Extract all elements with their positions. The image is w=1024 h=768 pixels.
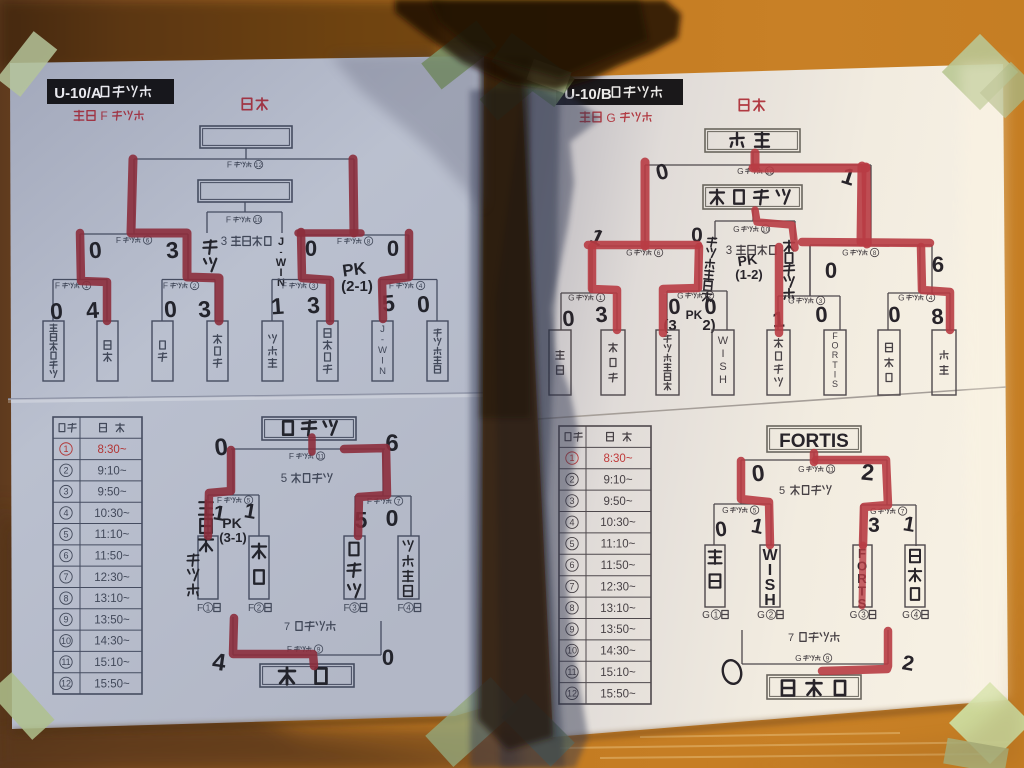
svg-text:(1-2): (1-2): [735, 267, 762, 282]
svg-text:PK: PK: [222, 515, 241, 531]
svg-text:2: 2: [769, 610, 774, 619]
svg-text:6: 6: [657, 250, 661, 257]
svg-text:G: G: [795, 653, 802, 663]
svg-text:F: F: [100, 109, 107, 123]
svg-text:F: F: [116, 235, 121, 245]
svg-text:3: 3: [197, 296, 212, 323]
svg-text:0: 0: [561, 306, 575, 332]
svg-text:F: F: [289, 451, 294, 461]
svg-text:I: I: [834, 369, 837, 379]
svg-text:13:50~: 13:50~: [94, 614, 130, 626]
svg-text:15:50~: 15:50~: [600, 688, 636, 700]
svg-text:G: G: [902, 610, 910, 621]
svg-text:U-10/A: U-10/A: [54, 85, 102, 102]
svg-text:11:10~: 11:10~: [95, 529, 130, 541]
svg-text:7: 7: [284, 621, 290, 633]
svg-text:8:30~: 8:30~: [603, 453, 632, 465]
svg-text:G: G: [757, 610, 765, 621]
svg-text:S: S: [832, 379, 838, 389]
svg-text:8: 8: [63, 593, 68, 603]
svg-text:H: H: [764, 592, 776, 609]
svg-text:PK: PK: [686, 308, 703, 322]
svg-text:H: H: [719, 374, 727, 386]
svg-text:6: 6: [569, 560, 574, 570]
svg-text:2: 2: [257, 603, 262, 612]
svg-text:11:50~: 11:50~: [601, 560, 636, 572]
svg-text:13:10~: 13:10~: [600, 603, 636, 615]
svg-text:14:30~: 14:30~: [94, 636, 130, 648]
svg-text:F: F: [227, 159, 232, 169]
svg-text:8: 8: [930, 304, 944, 330]
svg-text:J: J: [380, 324, 385, 335]
svg-text:15:10~: 15:10~: [94, 657, 130, 669]
svg-text:11: 11: [61, 657, 70, 667]
svg-text:0: 0: [814, 302, 828, 328]
svg-text:(2-1): (2-1): [341, 278, 373, 295]
svg-text:F: F: [337, 236, 342, 246]
svg-text:2: 2: [193, 283, 197, 290]
svg-text:10:30~: 10:30~: [600, 517, 636, 529]
svg-text:W: W: [378, 345, 387, 356]
svg-text:-: -: [280, 247, 283, 257]
svg-text:3: 3: [726, 245, 732, 257]
svg-text:4: 4: [406, 603, 411, 612]
svg-text:9: 9: [317, 646, 321, 653]
svg-text:0: 0: [667, 294, 681, 320]
svg-text:14:30~: 14:30~: [600, 646, 636, 658]
svg-text:0: 0: [88, 237, 103, 264]
svg-text:G: G: [568, 292, 575, 302]
svg-text:4: 4: [63, 508, 68, 518]
svg-text:3: 3: [165, 237, 180, 264]
svg-text:4: 4: [914, 610, 919, 619]
svg-text:8:30~: 8:30~: [97, 444, 126, 456]
svg-text:10: 10: [762, 226, 770, 233]
svg-text:9:50~: 9:50~: [97, 487, 126, 499]
svg-text:G: G: [850, 610, 858, 621]
svg-text:0: 0: [750, 459, 765, 486]
svg-text:12: 12: [61, 678, 71, 688]
svg-text:0: 0: [416, 291, 431, 318]
svg-text:G: G: [702, 610, 710, 621]
svg-text:0: 0: [387, 236, 399, 261]
svg-text:5: 5: [779, 485, 785, 497]
svg-text:F: F: [832, 331, 838, 341]
svg-text:O: O: [831, 341, 838, 351]
svg-text:8: 8: [569, 603, 574, 613]
svg-text:W: W: [718, 335, 729, 347]
svg-text:0: 0: [382, 645, 394, 670]
svg-text:3: 3: [868, 514, 880, 537]
svg-text:1: 1: [599, 295, 603, 302]
svg-text:12:30~: 12:30~: [94, 572, 130, 584]
svg-text:1: 1: [206, 603, 211, 612]
svg-text:7: 7: [63, 572, 68, 582]
svg-text:3: 3: [352, 603, 357, 612]
svg-text:T: T: [832, 360, 838, 370]
svg-text:9: 9: [826, 655, 830, 662]
svg-text:5: 5: [281, 473, 287, 485]
svg-text:0: 0: [386, 505, 399, 531]
svg-text:11: 11: [317, 453, 324, 460]
svg-text:S: S: [719, 361, 726, 373]
svg-text:8: 8: [873, 250, 877, 257]
svg-text:G: G: [733, 224, 740, 234]
svg-text:4: 4: [929, 295, 933, 302]
svg-text:13:10~: 13:10~: [94, 593, 130, 605]
svg-text:G: G: [788, 295, 795, 305]
svg-text:4: 4: [419, 283, 423, 290]
svg-text:2: 2: [63, 465, 68, 475]
svg-text:10: 10: [61, 636, 71, 646]
svg-text:N: N: [379, 366, 386, 377]
svg-text:11: 11: [827, 466, 834, 473]
svg-text:5: 5: [569, 539, 574, 549]
svg-text:1: 1: [270, 293, 285, 320]
svg-text:F: F: [55, 280, 60, 290]
svg-text:F: F: [197, 603, 203, 614]
svg-text:3: 3: [861, 610, 866, 619]
svg-text:3: 3: [221, 236, 227, 248]
svg-text:G: G: [737, 166, 744, 176]
svg-text:G: G: [606, 111, 615, 125]
svg-text:1: 1: [714, 610, 719, 619]
svg-text:2): 2): [702, 317, 715, 334]
svg-text:12:30~: 12:30~: [600, 581, 636, 593]
svg-text:I: I: [721, 348, 724, 360]
svg-text:0: 0: [887, 302, 901, 328]
svg-text:10:30~: 10:30~: [94, 508, 130, 520]
svg-text:0: 0: [305, 236, 317, 261]
svg-text:9:10~: 9:10~: [97, 465, 126, 477]
svg-text:7: 7: [788, 632, 794, 644]
svg-text:11:50~: 11:50~: [95, 551, 130, 563]
svg-text:0: 0: [163, 296, 178, 323]
svg-text:F: F: [282, 280, 287, 290]
svg-text:3: 3: [63, 487, 68, 497]
svg-text:F: F: [248, 603, 254, 614]
svg-text:I: I: [381, 356, 384, 367]
svg-text:3: 3: [594, 302, 608, 328]
svg-text:3: 3: [306, 292, 321, 319]
svg-text:9:50~: 9:50~: [603, 496, 632, 508]
svg-text:9:10~: 9:10~: [603, 474, 632, 486]
svg-text:(3-1): (3-1): [219, 530, 246, 545]
svg-text:G: G: [842, 247, 849, 257]
svg-text:G: G: [798, 464, 805, 474]
svg-text:F: F: [226, 214, 231, 224]
svg-text:13:50~: 13:50~: [600, 624, 636, 636]
svg-text:10: 10: [254, 217, 262, 224]
svg-text:6: 6: [932, 252, 944, 277]
svg-text:9: 9: [63, 615, 68, 625]
svg-text:R: R: [832, 350, 839, 360]
svg-text:7: 7: [569, 582, 574, 592]
svg-text:3: 3: [312, 283, 316, 290]
svg-text:12: 12: [255, 162, 263, 169]
svg-text:1: 1: [63, 444, 68, 454]
svg-text:6: 6: [63, 551, 68, 561]
svg-text:6: 6: [146, 237, 150, 244]
svg-text:5: 5: [63, 529, 68, 539]
svg-text:15:50~: 15:50~: [94, 678, 130, 690]
svg-text:8: 8: [367, 238, 371, 245]
svg-text:0: 0: [825, 258, 837, 283]
svg-text:0: 0: [703, 294, 717, 320]
svg-text:4: 4: [85, 297, 100, 324]
svg-text:-: -: [381, 335, 384, 346]
svg-text:4: 4: [569, 517, 574, 527]
svg-text:F: F: [343, 603, 349, 614]
svg-text:F: F: [397, 603, 403, 614]
svg-text:15:10~: 15:10~: [600, 667, 636, 679]
svg-text:G: G: [722, 505, 729, 515]
svg-text:F: F: [163, 280, 168, 290]
svg-text:11:10~: 11:10~: [601, 539, 636, 551]
